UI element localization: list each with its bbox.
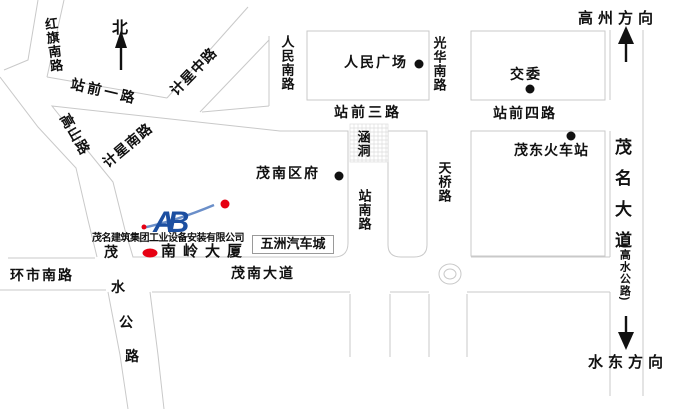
nanling-building-marker — [143, 249, 158, 258]
road-label-zhanqian-4: 站前四路 — [493, 106, 557, 122]
shuidong-direction-arrow-icon — [618, 316, 634, 350]
logo-red-dot-small — [142, 225, 147, 230]
road-label-renmin-south: 人民南路 — [279, 35, 294, 91]
road-label-zhanqian-3: 站前三路 — [334, 105, 402, 121]
road-label-maoming-avenue-alt: (高水公路) — [618, 244, 630, 301]
place-label-renmin-square: 人民广场 — [344, 55, 408, 71]
road-label-huanshi-south: 环市南路 — [10, 268, 74, 284]
road-label-maoshui-char-3: 公 — [119, 315, 133, 331]
place-label-maonan-gov: 茂南区府 — [256, 166, 320, 182]
road-label-maoshui-char-1: 茂 — [104, 245, 118, 261]
roundabout-inner-ring — [444, 269, 456, 279]
maoshui-road-east-edge — [150, 292, 164, 409]
road-label-tianqiao: 天桥路 — [436, 161, 451, 203]
block-narrow-center — [388, 131, 427, 257]
direction-label-gaozhou: 高州方向 — [578, 11, 658, 28]
north-label: 北 — [112, 20, 128, 38]
road-label-culvert: 涵洞 — [355, 130, 370, 158]
city-map: AB 北 红旗南路 站前一路 计星中路 计星南路 高山路 人民南路 光华南路 站… — [0, 0, 680, 409]
direction-label-shuidong: 水东方向 — [588, 355, 668, 372]
road-label-maoshui-char-4: 路 — [125, 349, 139, 365]
logo-red-dot-large — [221, 200, 230, 209]
road-network-canvas: AB — [0, 0, 680, 409]
zhanqian1-north-edge-east — [202, 106, 269, 112]
gaoshan-road-west-edge — [0, 77, 97, 257]
poi-dot-jiaowei — [526, 85, 535, 94]
place-label-wuzhou-auto-city: 五洲汽车城 — [252, 235, 334, 254]
road-label-maonan-avenue: 茂南大道 — [231, 266, 295, 282]
road-label-maoshui-char-2: 水 — [111, 280, 125, 296]
poi-dot-maonan-gov — [335, 172, 344, 181]
road-label-guanghua-south: 光华南路 — [431, 36, 446, 92]
place-label-nanling-building: 南岭大厦 — [161, 244, 249, 261]
place-label-jiaowei: 交委 — [510, 67, 542, 83]
place-label-maodong-station: 茂东火车站 — [514, 143, 589, 159]
poi-dot-maodong-station — [567, 132, 576, 141]
road-label-zhannan: 站南路 — [356, 189, 371, 231]
hongqi-road-west-edge — [4, 0, 38, 70]
roundabout-icon — [439, 264, 461, 284]
gaozhou-direction-arrow-icon — [618, 26, 634, 62]
poi-dot-renmin-square — [415, 60, 424, 69]
